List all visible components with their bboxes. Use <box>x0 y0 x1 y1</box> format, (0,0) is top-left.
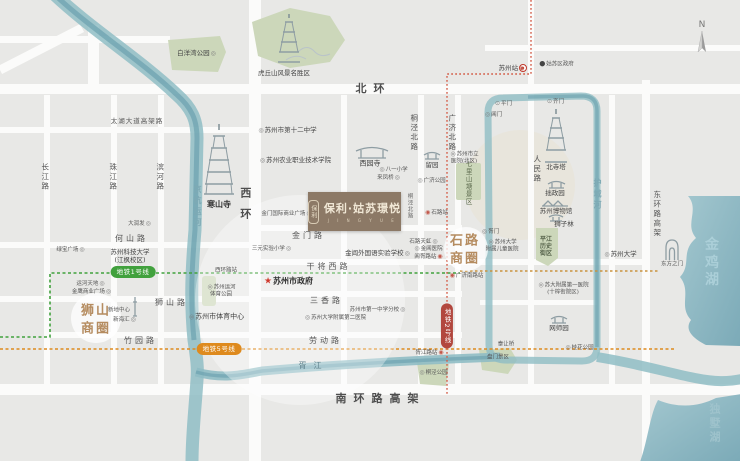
road-zhujiang: 珠江路 <box>108 163 117 192</box>
water-xujiang-text: 胥江 <box>299 361 329 370</box>
road-nanhuan-viaduct: 南环路高架 <box>329 392 426 406</box>
poi-liuyuan-garden-text: 留园 <box>426 161 439 169</box>
poi-gusu-government-text: 姑苏区政府 <box>546 62 574 68</box>
poi-xiyuan-temple: 西园寺 <box>360 160 381 169</box>
road-jinmen-text: 金门路 <box>292 231 325 240</box>
poi-baiyangwan-park: 白洋湾公园◎ <box>177 49 217 58</box>
road-beihuan: 北环 <box>349 82 392 96</box>
poi-hanshan-temple-text: 寒山寺 <box>207 200 231 209</box>
poi-changmen-gate-text: 阊门 <box>491 112 502 118</box>
poi-suzhou-university: ◎苏州大学 <box>603 250 636 259</box>
district-shilu-text: 石路 商圈 <box>450 233 480 266</box>
poi-panmen-scenic-text: 盘门景区 <box>487 355 509 361</box>
poi-lvbao-plaza: 绿宝广场◎ <box>56 246 85 254</box>
station-changxulu: 阊胥路站◉ <box>414 253 443 261</box>
road-heshan: 何山路 <box>112 234 148 244</box>
road-renmin: 人民路 <box>532 155 541 184</box>
poi-gusu-government: ●姑苏区政府 <box>538 60 574 69</box>
poi-no1-school-text: 苏州市第一中学分校 <box>350 307 400 313</box>
poi-pingmen-gate: ⊙平门 <box>494 100 512 108</box>
poi-pingmen-gate-marker-icon: ⊙ <box>495 100 500 107</box>
poi-wangshiyuan-text: 网师园 <box>549 324 569 332</box>
poi-qilishantang: 七里山塘景区 <box>464 161 472 206</box>
poi-fuer-hospital-text: 苏州大学附属第二医院 <box>311 315 366 321</box>
road-heshan-text: 何山路 <box>115 234 148 243</box>
city-map: N 保利 保利·姑苏璟悦 J I N G Y U E 北环太湖大道高架路何山路金… <box>0 0 740 461</box>
poi-no1-school-marker-icon: ◎ <box>400 306 405 313</box>
poi-bayi-school: ◎八一小学 <box>378 166 407 174</box>
badge-metro-line1-text: 地铁1号线 <box>117 268 150 276</box>
poi-no12-school: ◎苏州市第十二中学 <box>257 126 316 135</box>
road-tongjing-n-text: 桐泾北路 <box>410 114 419 152</box>
poi-guihua-park-marker-icon: ◎ <box>565 344 570 351</box>
badge-metro-line5: 地铁5号线 <box>197 343 242 355</box>
poi-pingjiang-district-text: 平江 历史 街区 <box>540 236 552 257</box>
poi-tongjing-park: ◎桐泾公园 <box>418 369 447 377</box>
station-shilu-marker-icon: ◉ <box>425 209 430 216</box>
station-shilu-text: 石路站 <box>431 210 448 216</box>
station-xihuanlu: 西环路站 <box>215 268 237 275</box>
poi-yunhe-tiandi-text: 运河天地 <box>76 281 98 287</box>
road-xihuan-text: 西环 <box>239 187 252 229</box>
poi-xiyuan-temple-text: 西园寺 <box>360 160 381 168</box>
poi-guangji-park: ◎广济公园 <box>416 177 445 185</box>
poi-hanshan-temple: 寒山寺 <box>207 200 231 210</box>
poi-jinchang-hospital: ◎金阊医院 <box>413 245 442 253</box>
project-name: 保利·姑苏璟悦 <box>324 200 401 216</box>
poi-city-government-text: 苏州市政府 <box>273 276 313 285</box>
poi-shizilin: 狮子林 <box>554 220 574 228</box>
poi-lvbao-plaza-text: 绿宝广场 <box>56 247 78 253</box>
poi-yunhe-sport-park-text: 苏州运河 体育公园 <box>210 285 236 298</box>
water-jinji-lake-text: 金鸡湖 <box>705 237 723 288</box>
poi-beisita-pagoda-text: 北寺塔 <box>546 163 566 171</box>
road-tongjing-n: 桐泾北路 <box>409 114 418 152</box>
poi-fuyi-hospital: ◎苏大附属第一医院 (十梓街院区) <box>537 282 588 297</box>
poi-qimen-gate-text: 齐门 <box>553 99 564 105</box>
district-shishan: 狮山 商圈 <box>81 302 111 337</box>
poi-jinchang-school: 金阊外国语实验学校◎ <box>345 249 411 258</box>
poi-changmen-gate-marker-icon: ◎ <box>485 111 490 118</box>
road-beihuan-text: 北环 <box>356 82 392 95</box>
station-xujianglu-text: 胥江路站 <box>415 350 437 356</box>
poi-qimen-gate-marker-icon: ⊙ <box>547 98 552 105</box>
poi-huqiu-scenic-text: 虎丘山风景名胜区 <box>258 69 310 77</box>
water-grand-canal-text: 京杭运河 <box>193 185 202 229</box>
poi-lvbao-plaza-marker-icon: ◎ <box>79 246 84 253</box>
road-sanxiang: 三香路 <box>307 296 343 306</box>
poi-jinchang-hospital-text: 金阊医院 <box>421 246 443 252</box>
road-jinmen: 金门路 <box>289 231 325 241</box>
poi-changmen-gate: ◎阊门 <box>484 111 502 119</box>
poi-bayi-school-text: 八一小学 <box>386 167 408 173</box>
poi-laifengqiao: 来凤桥◎ <box>377 174 401 182</box>
poi-pingmen-gate-text: 平门 <box>501 101 512 107</box>
poi-tairang-bridge-text: 泰让桥 <box>498 342 515 348</box>
station-guangjinanlu: ◉广济南路站 <box>449 272 484 280</box>
station-guangjinanlu-marker-icon: ◉ <box>450 272 455 279</box>
poi-yunhe-tiandi: 运河天地◎ <box>76 280 105 288</box>
poi-guihua-park-text: 桂花公园 <box>572 345 594 351</box>
poi-xumen-gate-text: 胥门 <box>488 229 499 235</box>
poi-children-hospital: ◎苏州大学 附属儿童医院 <box>485 239 518 254</box>
road-zhuyuan-text: 竹园路 <box>124 336 157 345</box>
poi-children-hospital-marker-icon: ◎ <box>488 239 493 246</box>
road-laodong-text: 劳动路 <box>309 336 342 345</box>
poi-jinying-plaza-marker-icon: ◎ <box>106 288 111 295</box>
poi-suzhou-station-marker-icon: ◉ <box>519 65 524 72</box>
poi-yunhe-sport-park: ◎苏州运河 体育公园 <box>206 284 235 299</box>
district-shilu: 石路 商圈 <box>450 232 480 267</box>
poi-darunfa: 大润发◎ <box>128 220 152 228</box>
poi-shili-hospital-marker-icon: ◎ <box>450 151 455 158</box>
road-donghuan-viaduct: 东环路高架 <box>652 190 661 238</box>
station-xihuanlu-text: 西环路站 <box>215 268 237 274</box>
poi-baiyangwan-park-marker-icon: ◎ <box>211 50 216 57</box>
poi-suzhou-museum-text: 苏州博物馆 <box>540 207 573 215</box>
poi-gate-of-the-east-text: 东方之门 <box>661 262 683 268</box>
poi-suzhou-museum: 苏州博物馆 <box>540 207 573 215</box>
poi-fuyi-hospital-text: 苏大附属第一医院 (十梓街院区) <box>545 283 589 296</box>
poi-panmen-scenic: 盘门景区 <box>487 355 509 362</box>
poi-guangji-park-text: 广济公园 <box>424 178 446 184</box>
water-dushu-lake-text: 独墅湖 <box>710 402 723 443</box>
road-ganjiang-w: 干将西路 <box>304 262 351 272</box>
poi-sport-center: ◎苏州市体育中心 <box>188 313 244 322</box>
poi-bayi-school-marker-icon: ◎ <box>379 166 384 173</box>
poi-xinhaihui-text: 新海汇 <box>113 317 130 323</box>
poi-nongye-college-marker-icon: ◎ <box>260 157 265 164</box>
poi-darunfa-text: 大润发 <box>128 221 145 227</box>
poi-tairang-bridge: 泰让桥 <box>498 342 515 349</box>
badge-metro-line2-text: 地铁2号线 <box>443 308 451 343</box>
poi-laifengqiao-text: 来凤桥 <box>377 175 394 181</box>
poi-fuer-hospital-marker-icon: ◎ <box>305 314 310 321</box>
station-xujianglu: 胥江路站◉ <box>415 349 444 357</box>
road-shishan: 狮山路 <box>152 298 188 308</box>
poi-keji-university: 苏州科技大学 (江枫校区) <box>111 248 150 264</box>
station-xujianglu-marker-icon: ◉ <box>438 349 443 356</box>
road-changjiang: 长江路 <box>40 163 49 192</box>
poi-darunfa-marker-icon: ◎ <box>146 220 151 227</box>
poi-pingjiang-district: 平江 历史 街区 <box>540 236 552 258</box>
poi-tongjing-park-marker-icon: ◎ <box>419 369 424 376</box>
poi-tongjing-park-text: 桐泾公园 <box>426 370 448 376</box>
poi-beisita-pagoda: 北寺塔 <box>546 163 566 171</box>
water-xujiang: 胥江 <box>292 361 329 371</box>
poi-wangshiyuan: 网师园 <box>549 324 569 332</box>
poi-nongye-college: ◎苏州农业职业技术学院 <box>259 156 331 165</box>
poi-gusu-government-marker-icon: ● <box>539 60 545 68</box>
poi-liuyuan-garden: 留园 <box>426 161 439 169</box>
badge-metro-line1: 地铁1号线 <box>111 266 156 278</box>
poi-sport-center-marker-icon: ◎ <box>189 314 194 321</box>
poi-fuyi-hospital-marker-icon: ◎ <box>538 282 543 289</box>
poi-sanyuan-school-text: 三元实验小学 <box>252 246 285 252</box>
poi-jinchang-hospital-marker-icon: ◎ <box>414 245 419 252</box>
poi-gate-of-the-east: 东方之门 <box>661 262 683 269</box>
project-tagline: J I N G Y U E <box>324 218 401 223</box>
poi-xindi-center-text: 新地中心 <box>108 308 130 314</box>
road-guangji-n-text: 广济北路 <box>448 114 457 152</box>
poi-jinmen-plaza: 金门国际商业广场◎ <box>261 210 312 218</box>
road-xihuan: 西环 <box>238 187 252 229</box>
poi-city-government-marker-icon: ★ <box>264 276 272 286</box>
poi-yunhe-tiandi-marker-icon: ◎ <box>99 280 104 287</box>
road-zhujiang-text: 珠江路 <box>109 163 118 192</box>
poi-jinying-plaza: 金鹰商业广场◎ <box>72 288 112 296</box>
badge-metro-line2: 地铁2号线 <box>441 303 453 348</box>
poi-guangji-park-marker-icon: ◎ <box>417 177 422 184</box>
road-binhe-text: 滨河路 <box>156 163 165 192</box>
poi-guihua-park: ◎桂花公园 <box>564 344 593 352</box>
poi-keji-university-text: 苏州科技大学 (江枫校区) <box>111 248 150 264</box>
poi-suzhou-university-text: 苏州大学 <box>611 250 637 258</box>
road-zhuyuan: 竹园路 <box>121 336 157 346</box>
poi-qilishantang-text: 七里山塘景区 <box>464 161 472 206</box>
poi-city-government: ★苏州市政府 <box>263 276 313 287</box>
station-shilu: ◉石路站 <box>424 209 448 217</box>
poi-yunhe-sport-park-marker-icon: ◎ <box>207 284 212 291</box>
road-sanxiang-text: 三香路 <box>310 296 343 305</box>
poi-shizilin-text: 狮子林 <box>554 220 574 228</box>
poi-xinhaihui-marker-icon: ◎ <box>131 316 136 323</box>
road-ganjiang-w-text: 干将西路 <box>307 262 351 271</box>
road-donghuan-viaduct-text: 东环路高架 <box>653 190 662 238</box>
road-tongjing-n2-text: 桐泾北路 <box>406 193 412 219</box>
poi-sanyuan-school-marker-icon: ◎ <box>286 245 291 252</box>
water-moat-text: 护城河 <box>593 179 602 212</box>
water-dushu-lake: 独墅湖 <box>704 402 728 443</box>
poi-fuer-hospital: ◎苏州大学附属第二医院 <box>304 314 366 322</box>
road-laodong: 劳动路 <box>306 336 342 346</box>
road-changjiang-text: 长江路 <box>41 163 50 192</box>
road-nanhuan-viaduct-text: 南环路高架 <box>336 392 426 405</box>
poi-shilu-tianhong-marker-icon: ◎ <box>432 238 437 245</box>
poi-xinhaihui: 新海汇◎ <box>113 316 137 324</box>
road-guangji-n: 广济北路 <box>447 114 456 152</box>
road-taihu-viaduct: 太湖大道高架路 <box>111 117 164 125</box>
poi-jinchang-school-marker-icon: ◎ <box>405 250 410 257</box>
poi-jinmen-plaza-text: 金门国际商业广场 <box>261 211 305 217</box>
poi-no12-school-marker-icon: ◎ <box>258 127 263 134</box>
poi-xindi-center: 新地中心 <box>108 308 130 315</box>
poi-jinying-plaza-text: 金鹰商业广场 <box>72 289 105 295</box>
water-grand-canal: 京杭运河 <box>192 185 202 229</box>
water-moat: 护城河 <box>592 179 602 212</box>
water-jinji-lake: 金鸡湖 <box>701 237 727 290</box>
project-logo-box: 保利 保利·姑苏璟悦 J I N G Y U E <box>308 192 401 231</box>
poi-sport-center-text: 苏州市体育中心 <box>195 313 244 321</box>
station-guangjinanlu-text: 广济南路站 <box>456 273 484 279</box>
poi-baiyangwan-park-text: 白洋湾公园 <box>177 49 210 57</box>
station-changxulu-marker-icon: ◉ <box>437 253 442 260</box>
poi-nongye-college-text: 苏州农业职业技术学院 <box>266 156 331 164</box>
poi-xumen-gate-marker-icon: ◎ <box>482 228 487 235</box>
poi-qimen-gate: ⊙齐门 <box>546 98 564 106</box>
badge-metro-line5-text: 地铁5号线 <box>203 345 236 353</box>
poi-huqiu-scenic: 虎丘山风景名胜区 <box>258 69 310 77</box>
poi-suzhou-university-marker-icon: ◎ <box>604 251 609 258</box>
poi-zhuozhengyuan-text: 拙政园 <box>545 189 565 197</box>
poi-no12-school-text: 苏州市第十二中学 <box>265 126 317 134</box>
poi-laifengqiao-marker-icon: ◎ <box>395 174 400 181</box>
road-taihu-viaduct-text: 太湖大道高架路 <box>111 117 164 125</box>
road-binhe: 滨河路 <box>155 163 164 192</box>
district-shishan-text: 狮山 商圈 <box>81 303 111 336</box>
poly-emblem: 保利 <box>308 200 319 224</box>
station-changxulu-text: 阊胥路站 <box>414 254 436 260</box>
road-tongjing-n2: 桐泾北路 <box>406 193 413 219</box>
poi-jinchang-school-text: 金阊外国语实验学校 <box>345 249 404 257</box>
poi-sanyuan-school: 三元实验小学◎ <box>252 245 292 253</box>
poi-no1-school: 苏州市第一中学分校◎ <box>350 306 407 314</box>
poi-suzhou-station: 苏州站◉ <box>499 64 526 73</box>
poi-xumen-gate: ◎胥门 <box>481 228 499 236</box>
road-shishan-text: 狮山路 <box>155 298 188 307</box>
poi-zhuozhengyuan: 拙政园 <box>545 189 565 197</box>
poi-suzhou-station-text: 苏州站 <box>499 64 519 72</box>
road-renmin-text: 人民路 <box>533 155 542 184</box>
